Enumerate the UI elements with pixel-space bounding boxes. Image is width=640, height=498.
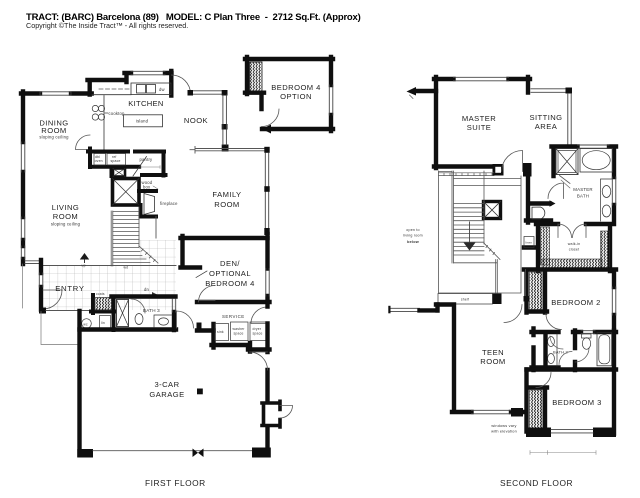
- svg-text:open to: open to: [406, 228, 419, 232]
- svg-text:living room: living room: [403, 234, 423, 238]
- svg-text:LIVING: LIVING: [52, 203, 80, 212]
- svg-text:BEDROOM 3: BEDROOM 3: [552, 398, 602, 407]
- svg-text:washer: washer: [233, 327, 246, 331]
- svg-text:SITTING: SITTING: [529, 113, 562, 122]
- svg-text:pantry: pantry: [140, 157, 154, 162]
- svg-text:SERVICE: SERVICE: [222, 314, 245, 319]
- svg-text:coats: coats: [96, 292, 105, 296]
- svg-text:NOOK: NOOK: [184, 116, 208, 125]
- svg-text:space: space: [234, 332, 244, 336]
- svg-text:island: island: [136, 119, 149, 124]
- svg-text:lin: lin: [101, 321, 105, 325]
- svg-text:windows vary: windows vary: [491, 424, 516, 428]
- svg-text:MASTER: MASTER: [462, 114, 496, 123]
- svg-text:dryer: dryer: [253, 327, 262, 331]
- svg-text:SECOND FLOOR: SECOND FLOOR: [500, 478, 573, 488]
- svg-text:sloping ceiling: sloping ceiling: [39, 135, 69, 140]
- svg-text:dw: dw: [159, 87, 166, 92]
- svg-text:below: below: [407, 240, 419, 244]
- svg-text:dn: dn: [144, 287, 150, 292]
- svg-text:cooktop: cooktop: [109, 111, 126, 116]
- svg-text:KITCHEN: KITCHEN: [128, 99, 163, 108]
- svg-text:fireplace: fireplace: [160, 201, 178, 206]
- svg-text:Copyright ©The Inside Tract™ -: Copyright ©The Inside Tract™ - All right…: [26, 21, 188, 30]
- svg-text:FAMILY: FAMILY: [212, 190, 241, 199]
- svg-text:AREA: AREA: [535, 122, 558, 131]
- svg-text:linen: linen: [525, 241, 532, 245]
- svg-text:up: up: [82, 264, 86, 268]
- svg-text:shelf: shelf: [461, 298, 469, 302]
- svg-text:3-CAR: 3-CAR: [154, 380, 179, 389]
- svg-text:BATH 3: BATH 3: [143, 308, 160, 313]
- svg-text:space: space: [253, 332, 263, 336]
- svg-text:OPTION: OPTION: [280, 92, 312, 101]
- svg-text:OPTIONAL: OPTIONAL: [209, 269, 251, 278]
- svg-text:TEEN: TEEN: [482, 348, 504, 357]
- svg-text:MASTER: MASTER: [573, 187, 593, 192]
- svg-text:closet: closet: [569, 248, 580, 252]
- svg-text:ENTRY: ENTRY: [55, 284, 85, 293]
- svg-text:GARAGE: GARAGE: [149, 390, 184, 399]
- svg-text:wc: wc: [83, 323, 88, 327]
- svg-text:DEN/: DEN/: [220, 259, 240, 268]
- svg-text:oven: oven: [95, 159, 103, 163]
- svg-text:BEDROOM 4: BEDROOM 4: [271, 83, 321, 92]
- svg-text:walk-in: walk-in: [568, 242, 581, 246]
- svg-text:FIRST FLOOR: FIRST FLOOR: [145, 478, 206, 488]
- svg-text:sink: sink: [217, 330, 224, 334]
- svg-text:with elevation: with elevation: [491, 430, 517, 434]
- svg-text:ROOM: ROOM: [53, 212, 78, 221]
- svg-text:BATH: BATH: [577, 194, 589, 199]
- svg-text:BEDROOM 4: BEDROOM 4: [205, 279, 255, 288]
- svg-text:box: box: [143, 185, 151, 190]
- svg-text:ROOM: ROOM: [480, 357, 505, 366]
- svg-text:wd: wd: [124, 266, 129, 270]
- svg-text:BATH 2: BATH 2: [553, 350, 568, 355]
- svg-text:space: space: [111, 159, 121, 163]
- svg-text:SUITE: SUITE: [467, 123, 492, 132]
- svg-text:ROOM: ROOM: [214, 200, 239, 209]
- svg-text:BEDROOM 2: BEDROOM 2: [551, 298, 601, 307]
- svg-text:sloping ceiling: sloping ceiling: [51, 222, 81, 227]
